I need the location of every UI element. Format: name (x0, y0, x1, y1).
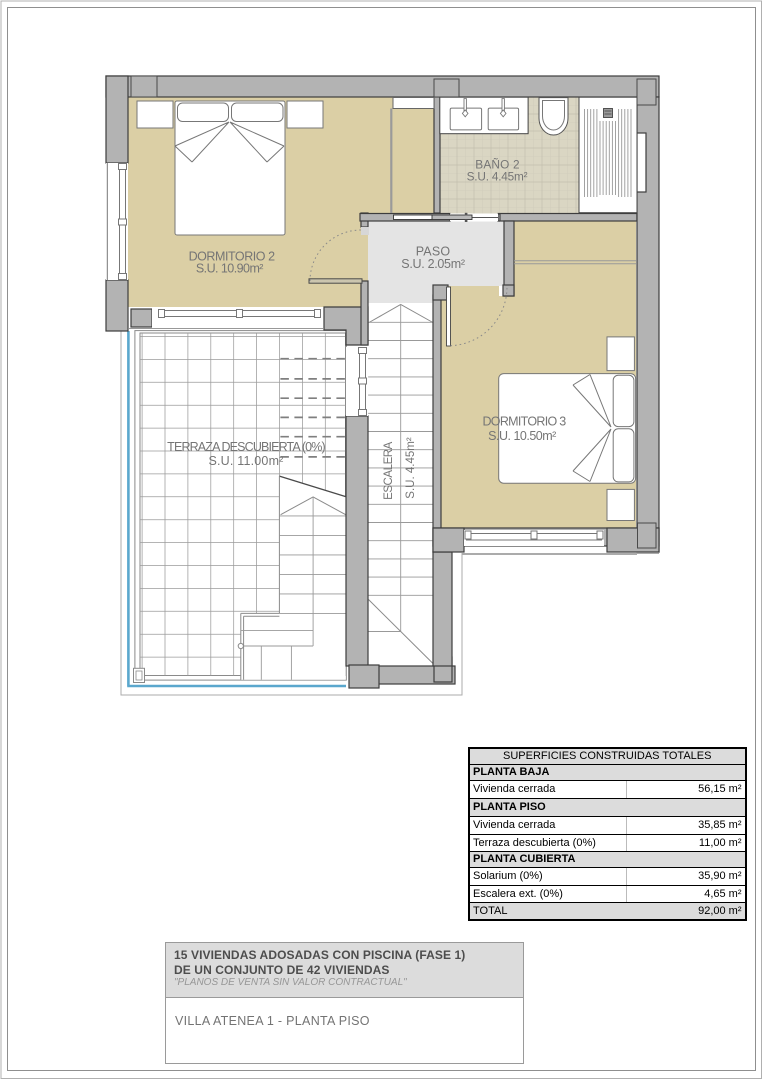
svg-text:S.U. 4.45m²: S.U. 4.45m² (467, 170, 528, 184)
svg-text:DORMITORIO 3: DORMITORIO 3 (482, 415, 566, 429)
svg-text:S.U. 2.05m²: S.U. 2.05m² (401, 257, 465, 271)
svg-text:S.U. 10.50m²: S.U. 10.50m² (488, 429, 556, 443)
svg-text:ESCALERA: ESCALERA (383, 441, 395, 500)
svg-text:S.U. 11.00m²: S.U. 11.00m² (208, 454, 283, 468)
svg-text:S.U. 10.90m²: S.U. 10.90m² (196, 262, 263, 276)
svg-text:S.U. 4.45m²: S.U. 4.45m² (405, 437, 417, 499)
svg-text:TERRAZA DESCUBIERTA (0%): TERRAZA DESCUBIERTA (0%) (167, 440, 325, 454)
